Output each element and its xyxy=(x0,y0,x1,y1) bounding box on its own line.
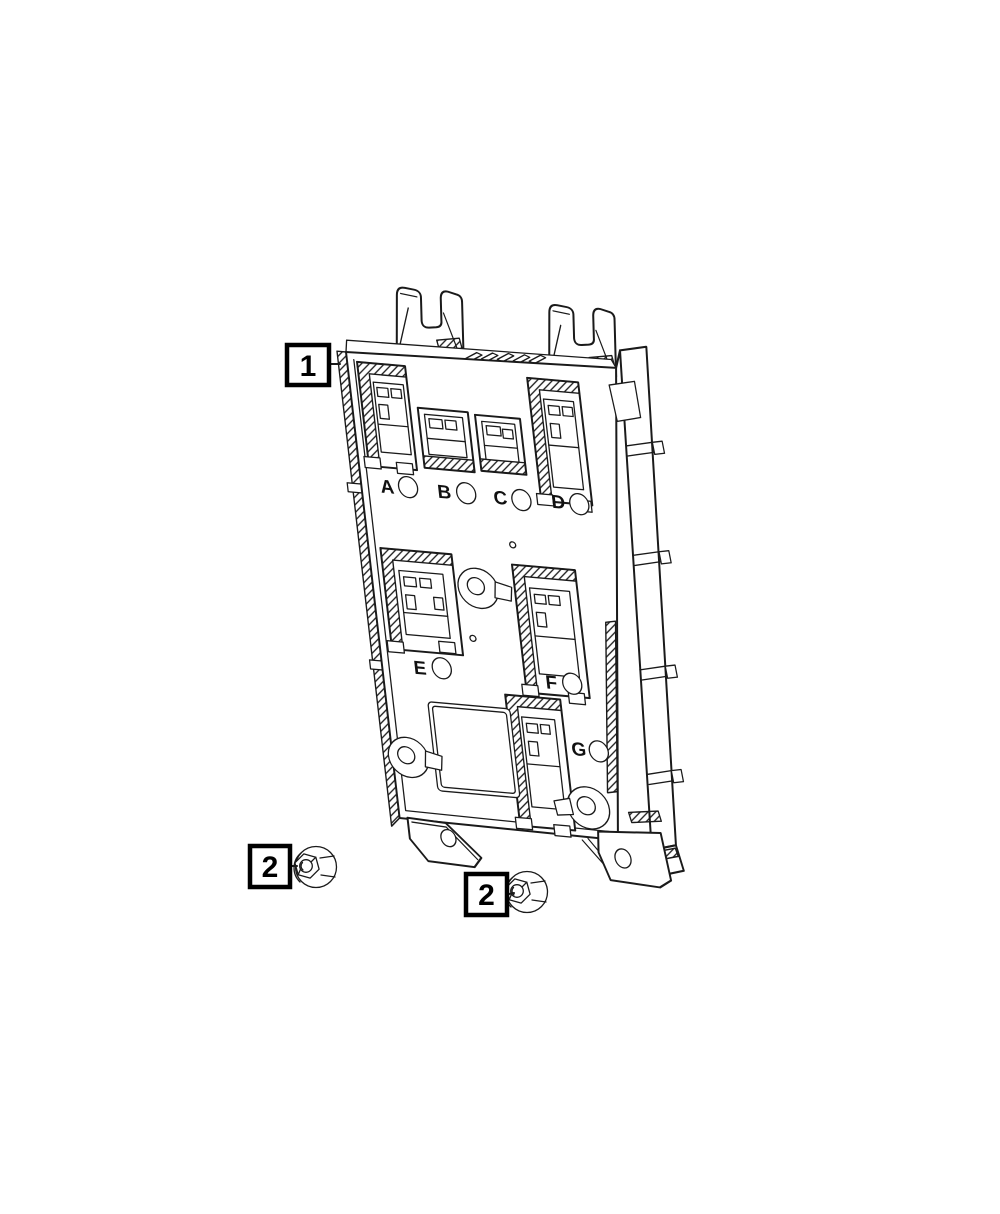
callout-1-label: 1 xyxy=(300,350,317,383)
leader-line-2-bottom xyxy=(509,893,514,894)
connector-label-d: D xyxy=(550,492,566,514)
connector-e xyxy=(376,548,463,659)
callout-2-bottom[interactable]: 2 xyxy=(466,874,514,915)
connector-label-b: B xyxy=(436,482,452,504)
parts-illustration: A B C D E F G 1 2 xyxy=(0,0,1000,1214)
parts-diagram-page: A B C D E F G 1 2 xyxy=(0,0,1000,1214)
callout-2-left[interactable]: 2 xyxy=(250,846,297,887)
label-plate-window xyxy=(428,702,520,798)
left-edge-tab xyxy=(347,483,362,493)
callout-1[interactable]: 1 xyxy=(287,345,340,385)
connector-label-g: G xyxy=(570,739,587,761)
callout-2-bottom-label: 2 xyxy=(478,879,495,912)
module-illustration: A B C D E F G xyxy=(324,281,715,893)
connector-c xyxy=(475,415,526,475)
connector-b xyxy=(418,408,475,472)
flange-nut-left xyxy=(294,847,336,888)
connector-label-e: E xyxy=(413,658,428,680)
callout-2-left-label: 2 xyxy=(262,851,279,884)
flange-nut-bottom xyxy=(505,872,547,913)
connector-label-c: C xyxy=(492,488,508,510)
connector-label-a: A xyxy=(379,477,395,499)
